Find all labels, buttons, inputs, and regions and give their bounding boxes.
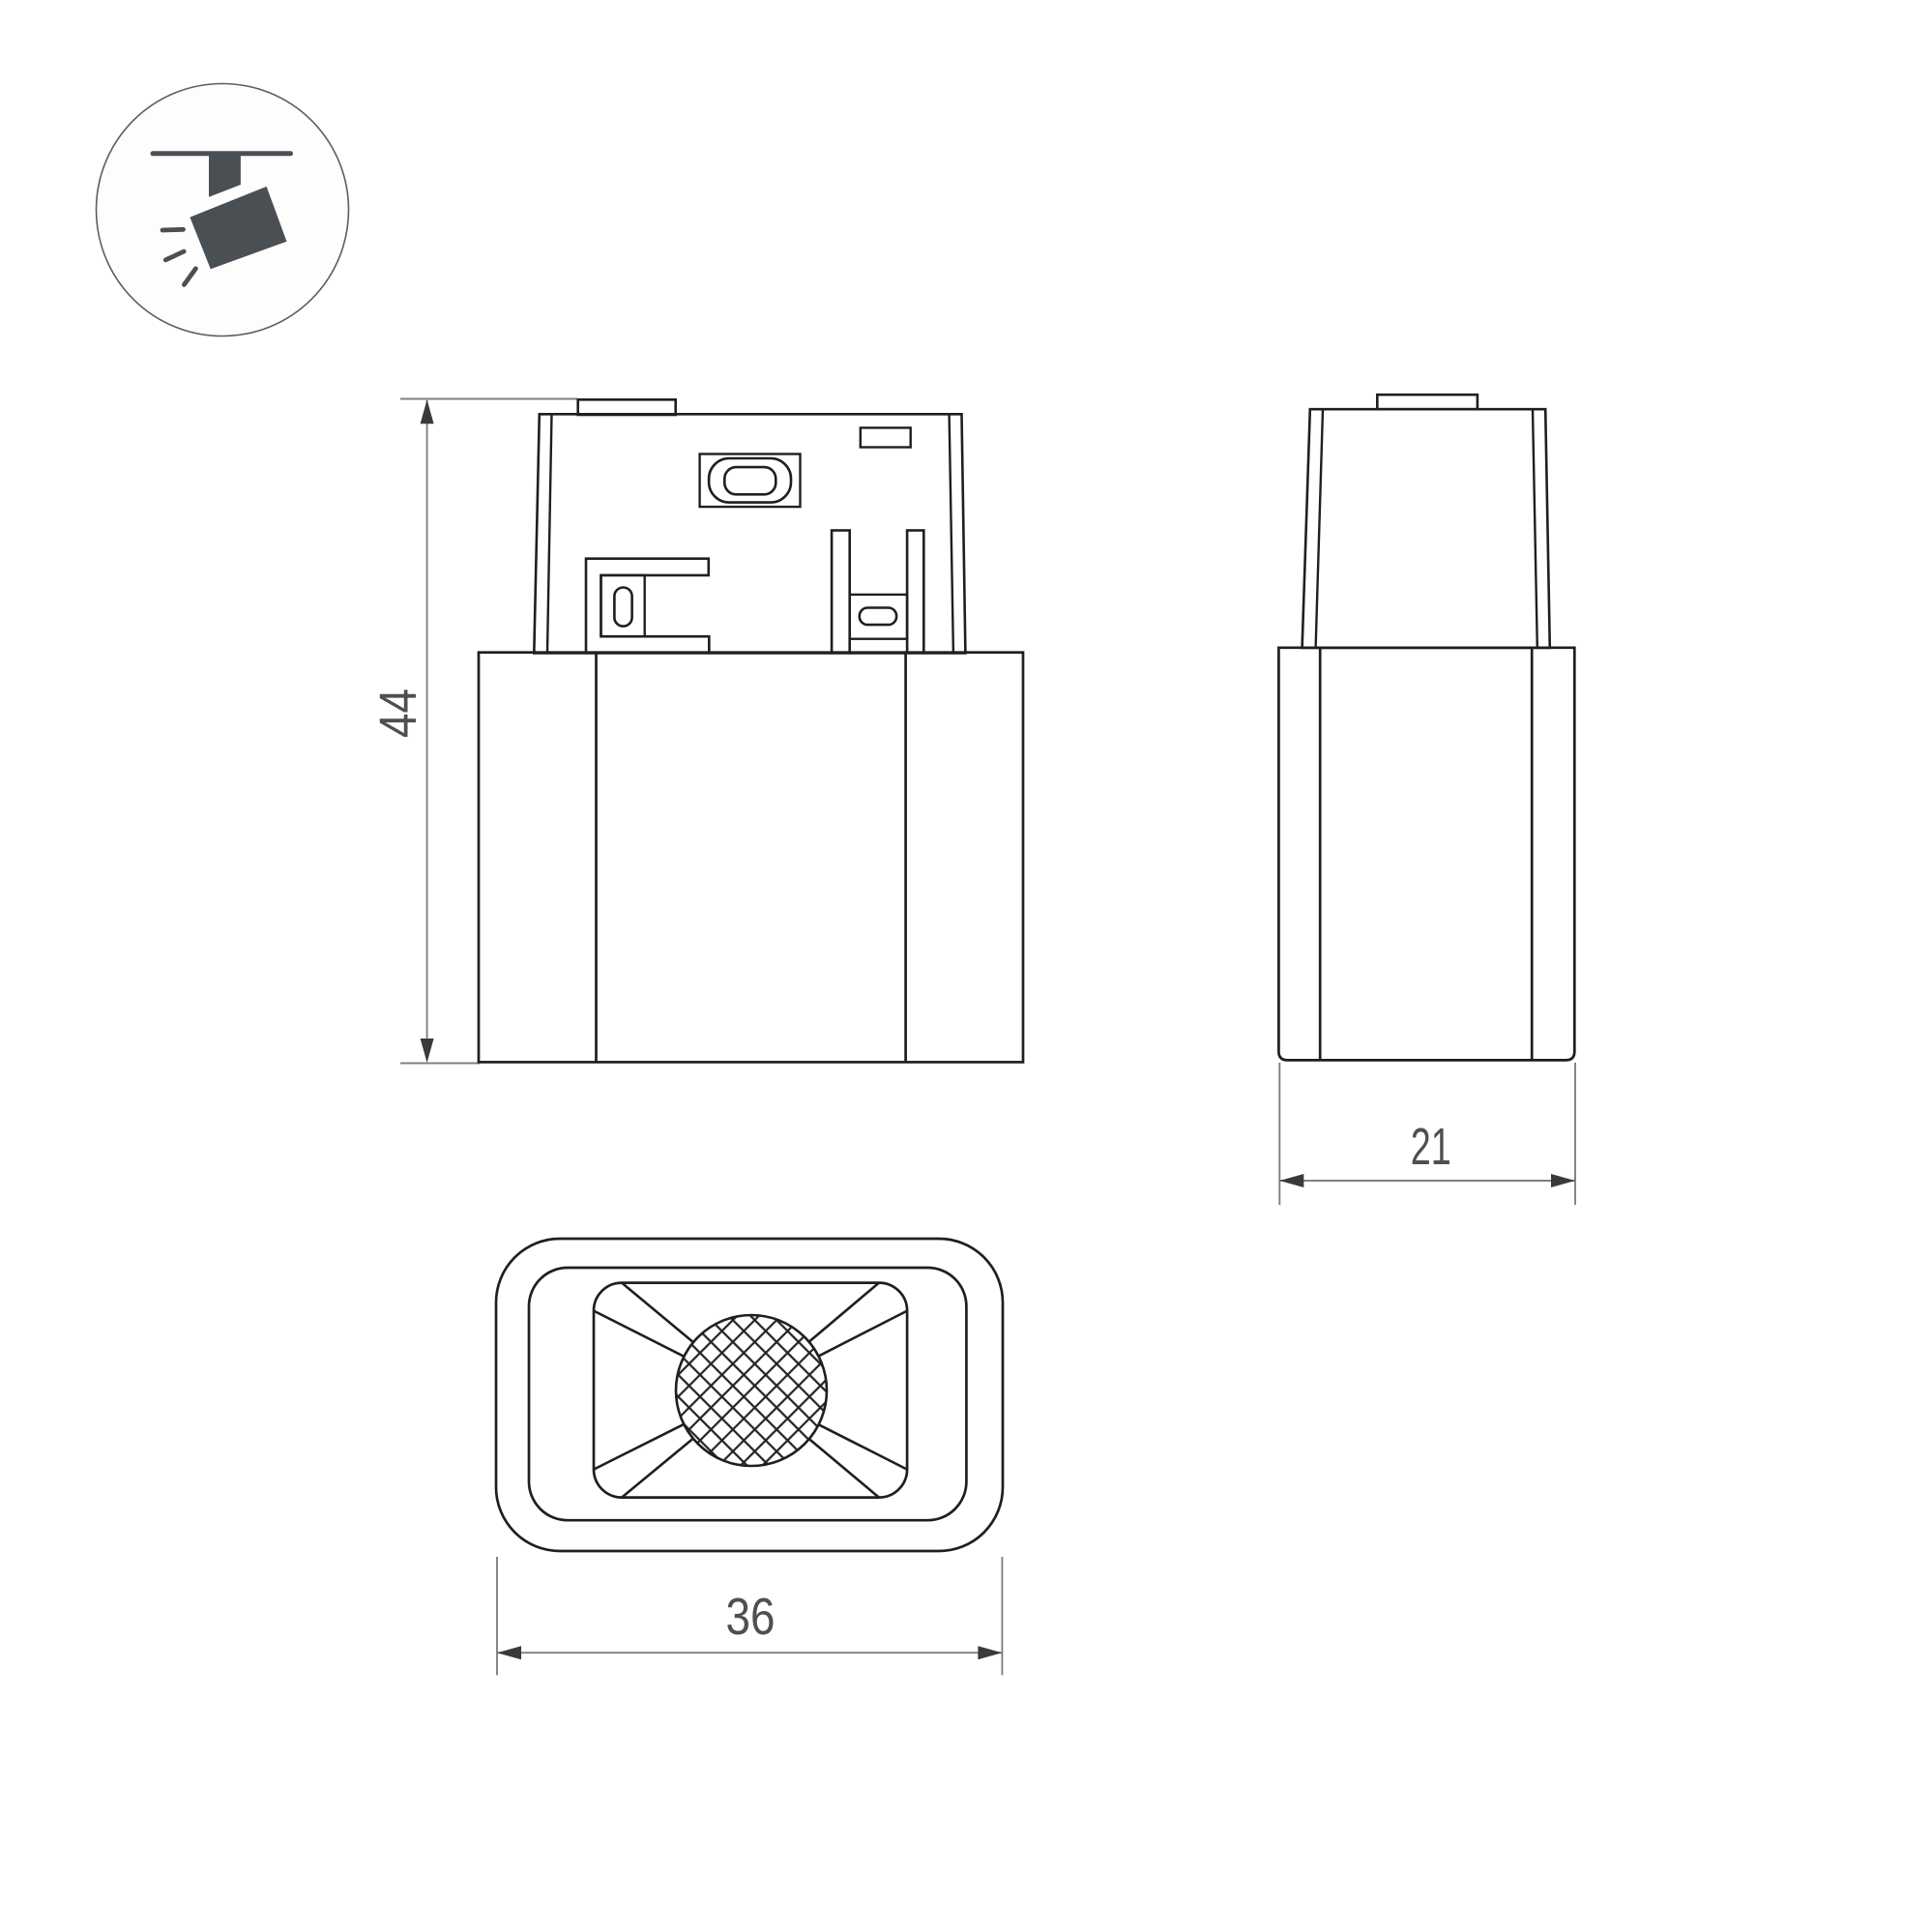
svg-text:36: 36 (726, 1588, 776, 1646)
svg-text:21: 21 (1411, 1118, 1451, 1176)
svg-text:44: 44 (369, 688, 427, 738)
